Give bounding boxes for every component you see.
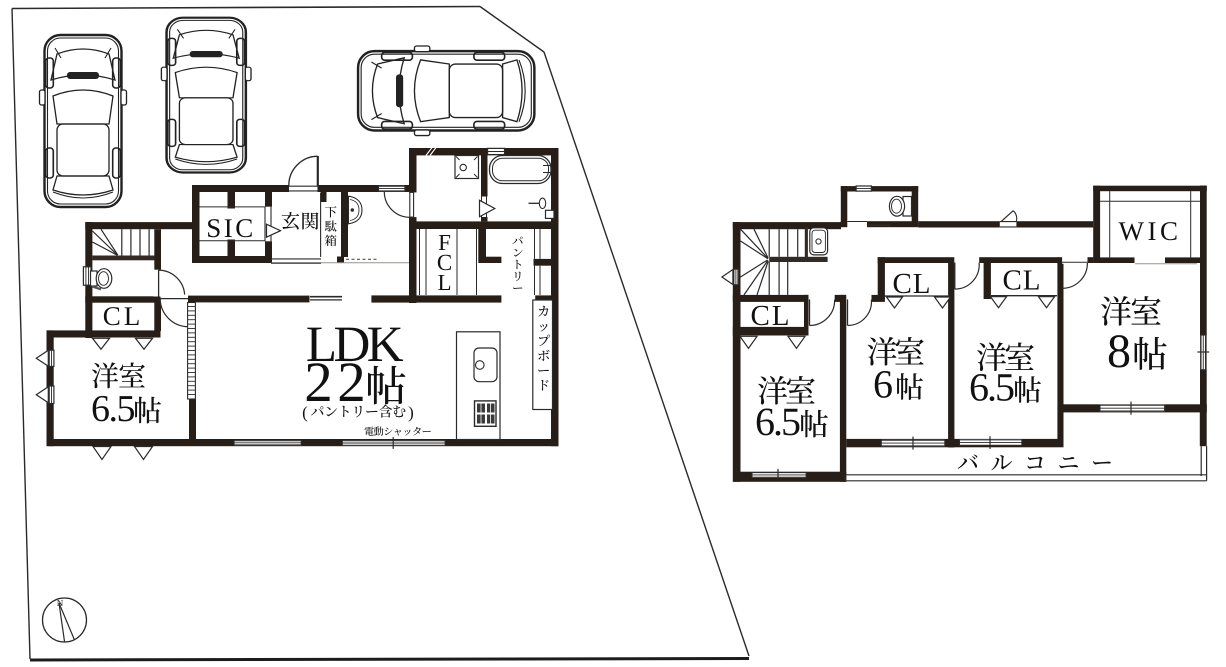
svg-text:CL: CL: [1002, 265, 1041, 297]
svg-text:WIC: WIC: [1119, 216, 1182, 246]
svg-text:6: 6: [873, 362, 893, 407]
svg-text:6.5: 6.5: [755, 399, 800, 444]
svg-text:N: N: [57, 598, 64, 608]
svg-text:SIC: SIC: [206, 213, 256, 243]
svg-text:2: 2: [304, 351, 333, 414]
svg-text:CL: CL: [103, 301, 144, 331]
svg-text:(: (: [302, 403, 308, 422]
svg-text:L: L: [437, 270, 451, 295]
svg-text:CL: CL: [750, 300, 791, 332]
svg-text:6.5: 6.5: [969, 365, 1014, 410]
svg-text:CL: CL: [892, 268, 931, 300]
svg-text:8: 8: [1107, 325, 1131, 378]
svg-text:6.5: 6.5: [91, 388, 135, 430]
svg-text:): ): [408, 403, 414, 422]
svg-text:2: 2: [337, 351, 366, 414]
